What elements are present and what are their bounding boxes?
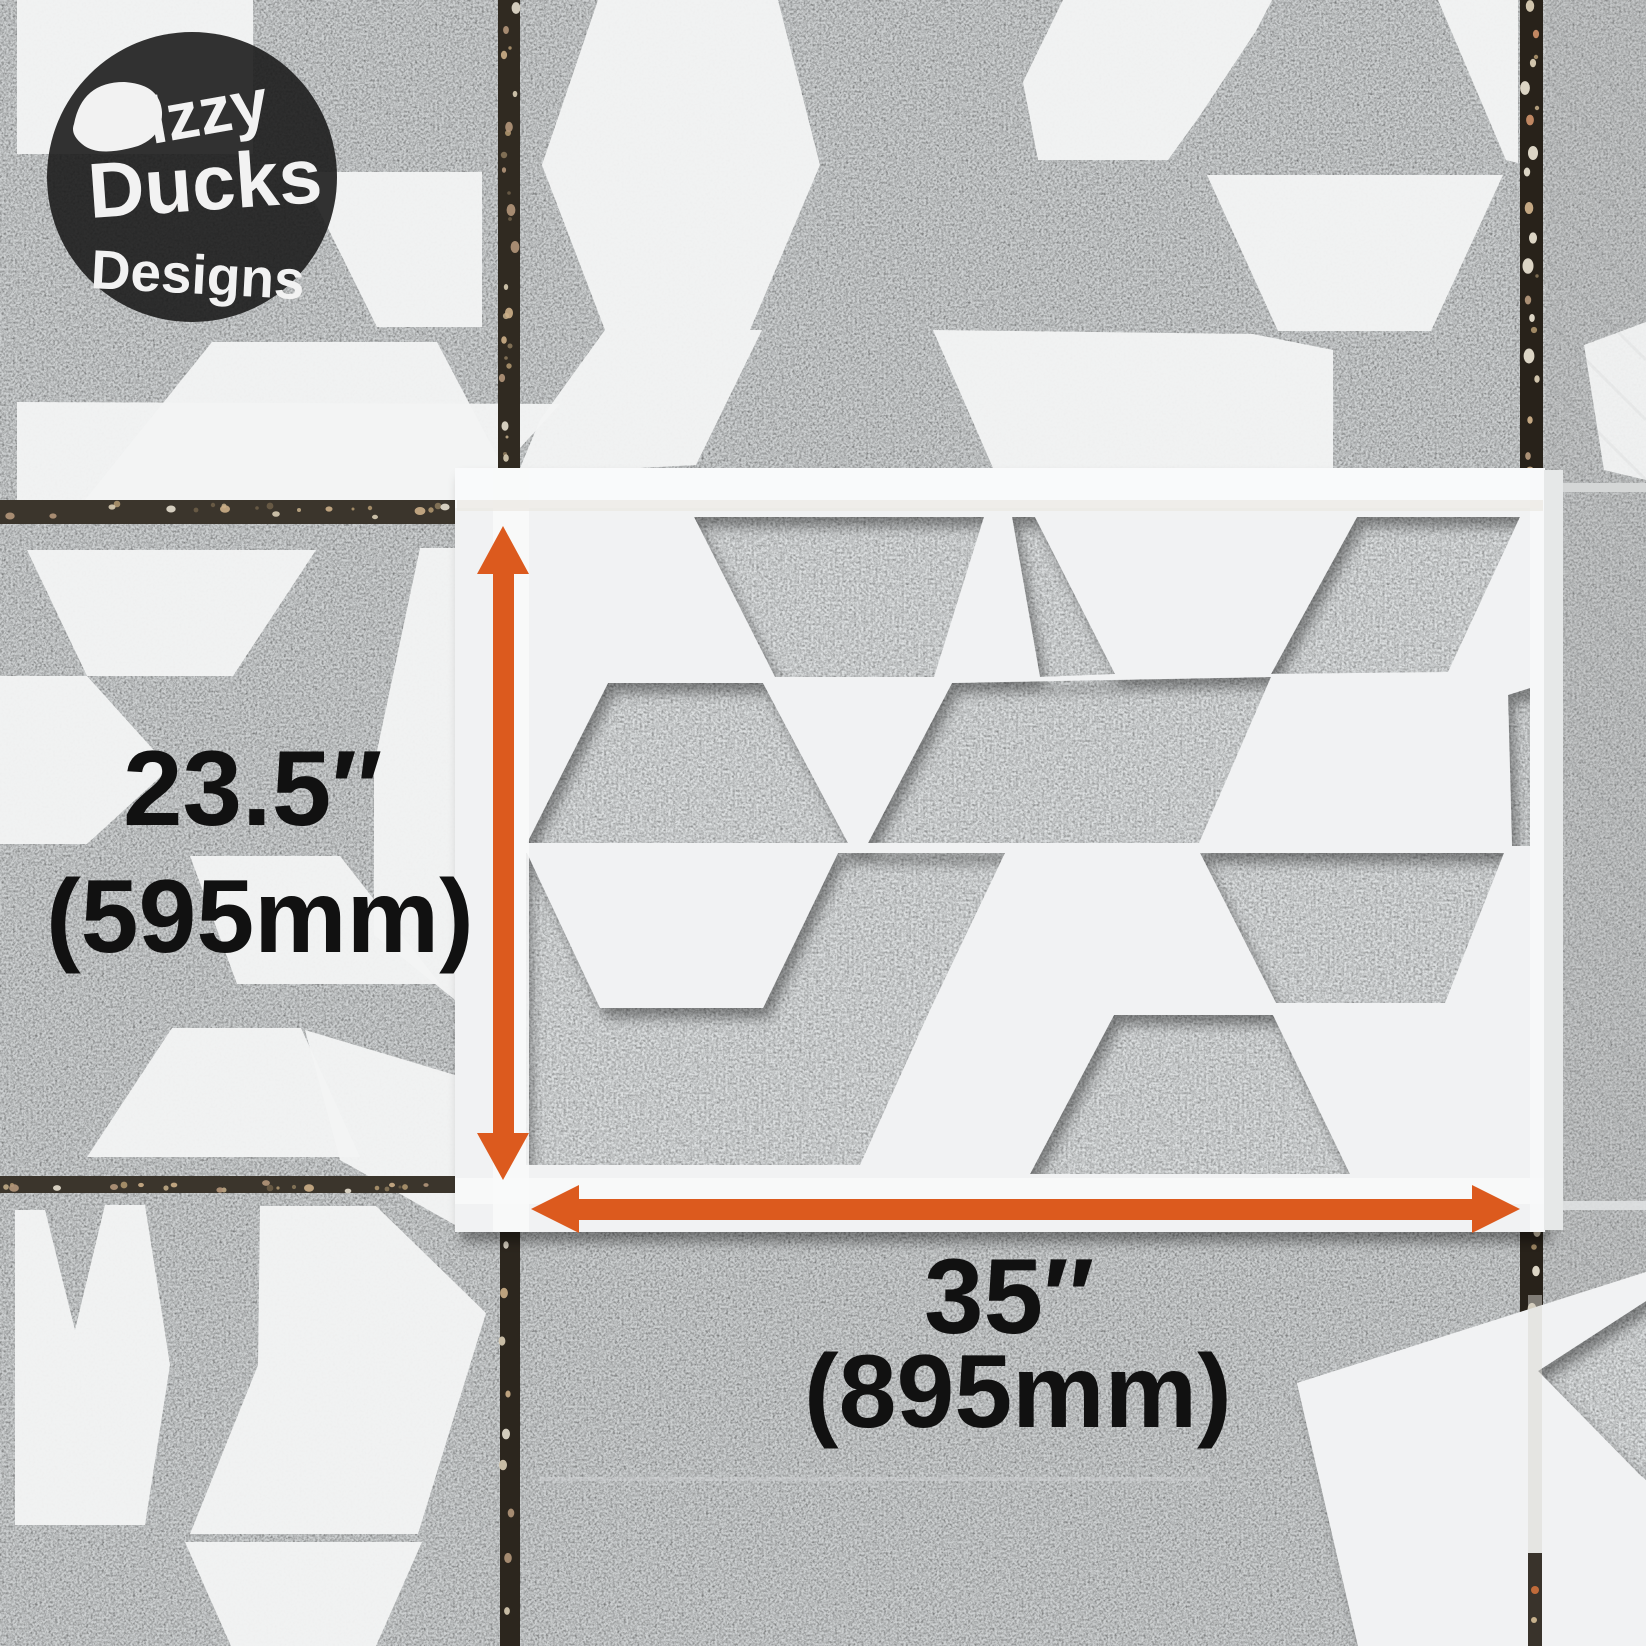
svg-text:Designs: Designs: [89, 238, 306, 311]
svg-text:(595mm): (595mm): [46, 859, 474, 975]
svg-text:23.5″: 23.5″: [123, 728, 383, 848]
svg-text:(895mm): (895mm): [804, 1334, 1232, 1450]
svg-text:Ducks: Ducks: [85, 131, 325, 235]
